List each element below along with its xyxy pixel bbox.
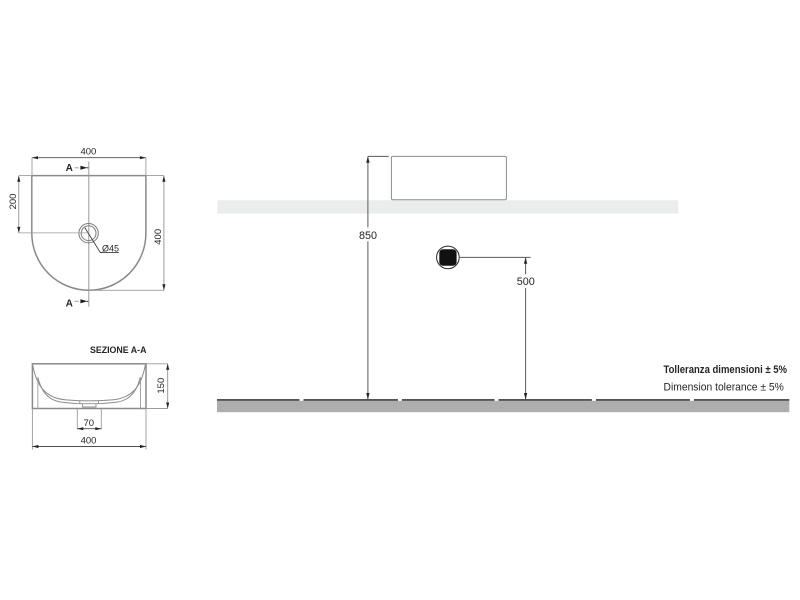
svg-text:A: A: [66, 163, 73, 174]
svg-text:A: A: [66, 298, 73, 309]
svg-text:Tolleranza dimensioni ± 5%: Tolleranza dimensioni ± 5%: [664, 364, 788, 376]
svg-text:Ø45: Ø45: [102, 244, 119, 255]
svg-text:200: 200: [8, 194, 19, 210]
svg-text:850: 850: [359, 230, 377, 242]
svg-text:70: 70: [84, 418, 95, 429]
svg-text:150: 150: [156, 378, 167, 394]
svg-text:500: 500: [517, 276, 535, 288]
svg-text:Dimension tolerance ± 5%: Dimension tolerance ± 5%: [664, 381, 784, 393]
svg-text:400: 400: [80, 146, 96, 157]
svg-text:400: 400: [153, 229, 164, 245]
svg-text:400: 400: [81, 436, 97, 447]
svg-text:SEZIONE A-A: SEZIONE A-A: [90, 345, 147, 356]
